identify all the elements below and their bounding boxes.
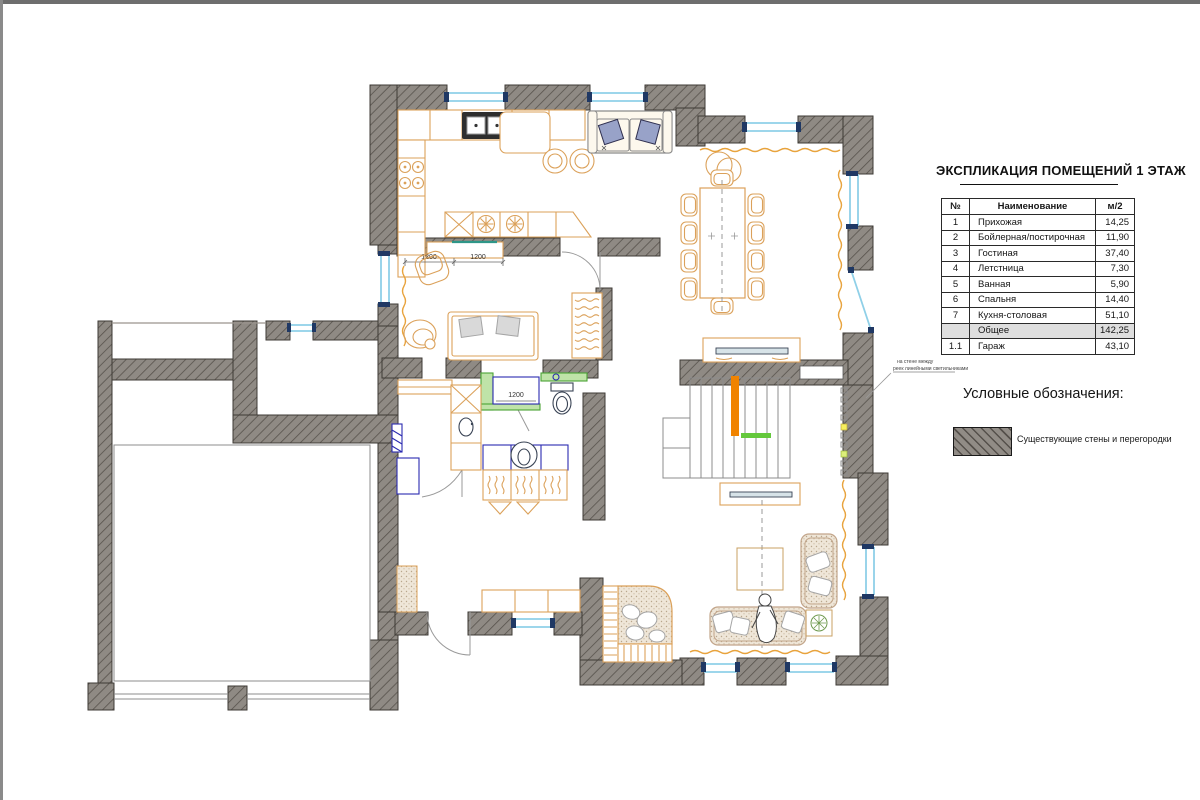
coffee-table <box>737 548 783 590</box>
window-kitchen-1 <box>444 92 508 102</box>
shower-dim-label: 1200 <box>508 392 524 399</box>
header-num: № <box>942 199 970 215</box>
staircase <box>663 376 790 478</box>
table-row: 6 Спальня 14,40 <box>942 292 1135 308</box>
table-header-row: № Наименование м/2 <box>942 199 1135 215</box>
tv-screen <box>716 348 788 354</box>
legend-wall-swatch <box>953 427 1012 456</box>
wall-niche <box>800 366 843 379</box>
kitchen-island <box>445 212 591 237</box>
window-hall <box>511 618 555 628</box>
tv-console-living <box>720 483 800 505</box>
bedroom: 1200 1200 <box>403 242 602 360</box>
terrace-door <box>848 267 874 333</box>
table-row-total: Общее 142,25 <box>942 323 1135 339</box>
washing-machine <box>397 458 419 494</box>
hall-wardrobe <box>483 470 567 514</box>
tv-screen <box>730 492 792 497</box>
explication-table: № Наименование м/2 1 Прихожая 14,25 2 Бо… <box>941 198 1135 355</box>
table-row: 2 Бойлерная/постирочная 11,90 <box>942 230 1135 246</box>
window-dining-right <box>846 171 858 229</box>
window-bedroom-left <box>378 251 390 307</box>
annotation-line1: на стене между <box>897 359 934 365</box>
window-living-bottom-2 <box>785 662 837 672</box>
legend-title: Условные обозначения: <box>963 386 1124 402</box>
hallway <box>397 470 580 612</box>
tv-console-dining <box>703 338 800 362</box>
plant <box>806 610 832 636</box>
kitchen-table <box>500 112 550 153</box>
hall-bench <box>482 590 580 612</box>
header-area: м/2 <box>1096 199 1135 215</box>
table-row: 1 Прихожая 14,25 <box>942 215 1135 231</box>
boiler-door <box>422 470 462 497</box>
sofa-pillow <box>636 120 660 144</box>
sofa <box>588 111 672 153</box>
boiler-shelf <box>398 380 452 394</box>
window-kitchen-2 <box>587 92 648 102</box>
stair-tread-accent <box>741 433 771 438</box>
table-row: 3 Гостиная 37,40 <box>942 246 1135 262</box>
legend-wall-label: Существующие стены и перегородки <box>1017 434 1172 444</box>
table-row: 7 Кухня-столовая 51,10 <box>942 308 1135 324</box>
drawing-sheet: 1200 1200 <box>0 0 1200 800</box>
bathroom: 1200 <box>481 373 587 472</box>
stair-landing <box>663 448 690 478</box>
radiator <box>392 424 402 452</box>
living-room <box>710 500 837 648</box>
annotation-line2: реек линейными светильниками <box>893 365 968 372</box>
armchair <box>801 534 837 608</box>
window-dining-top <box>742 122 801 132</box>
fireplace-corner <box>603 586 672 662</box>
table-row: 4 Летстница 7,30 <box>942 261 1135 277</box>
bar-stools <box>543 149 594 173</box>
entrance-door <box>427 612 470 655</box>
table-row: 1.1 Гараж 43,10 <box>942 339 1135 355</box>
boiler-cabinets <box>451 385 481 470</box>
boiler-room <box>392 380 481 494</box>
window-garage <box>287 323 316 332</box>
dim-label: 1200 <box>470 254 486 261</box>
bedroom-chair <box>404 320 436 349</box>
garage-inner-outline <box>114 445 370 681</box>
explication-title: ЭКСПЛИКАЦИЯ ПОМЕЩЕНИЙ 1 ЭТАЖ <box>936 163 1166 178</box>
title-underline <box>960 184 1118 185</box>
stair-landing <box>663 418 690 448</box>
bedroom-door <box>562 252 600 290</box>
bed <box>448 312 538 360</box>
stone-pier <box>397 566 417 612</box>
table-row: 5 Ванная 5,90 <box>942 277 1135 293</box>
stair-stripe <box>731 376 739 436</box>
window-living-bottom-1 <box>701 662 740 672</box>
window-living-right <box>862 544 874 599</box>
bed-pillow <box>496 316 520 337</box>
wardrobe-bedroom <box>572 293 602 358</box>
toilet <box>551 383 573 414</box>
annotation: на стене между реек линейными светильник… <box>866 359 968 398</box>
header-name: Наименование <box>970 199 1096 215</box>
shower: 1200 <box>481 373 540 410</box>
shelf-green <box>541 373 587 381</box>
desk <box>427 242 503 258</box>
bed-pillow <box>459 317 483 338</box>
